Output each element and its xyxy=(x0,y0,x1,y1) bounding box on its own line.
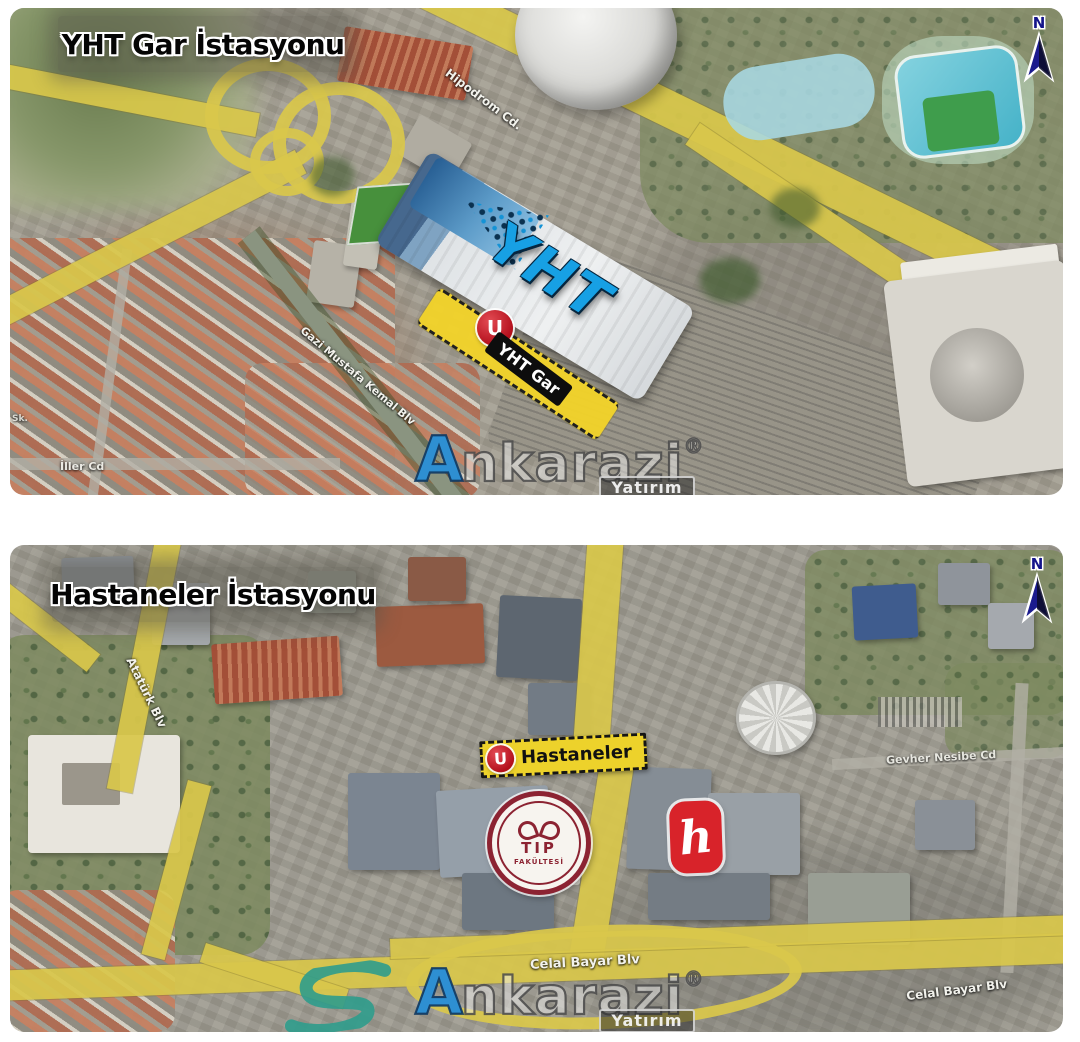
hacettepe-logo: h xyxy=(669,800,723,874)
trees xyxy=(700,258,760,303)
hospital-building xyxy=(648,873,770,920)
north-arrow: N xyxy=(1018,16,1060,83)
two-map-infographic: YHT U YHT Gar Hipodrom Cd. Gazi Mustafa … xyxy=(0,0,1080,1042)
building xyxy=(496,595,582,681)
watermark-logo: Ankarazi® Yatırım xyxy=(415,432,705,495)
building xyxy=(375,603,485,667)
circular-courtyard xyxy=(930,328,1024,422)
map-title: Hastaneler İstasyonu xyxy=(50,578,376,611)
brand-a-icon: A xyxy=(415,956,464,1029)
building xyxy=(211,636,343,705)
brand-a-icon: A xyxy=(415,423,464,495)
north-label: N xyxy=(1031,557,1044,572)
parking-lot xyxy=(878,697,962,727)
map-title: YHT Gar İstasyonu xyxy=(62,28,345,61)
metro-station-icon: U xyxy=(486,745,514,773)
logo-inner-ring xyxy=(497,801,581,885)
residential-area xyxy=(10,890,175,1032)
watermark-logo: Ankarazi® Yatırım xyxy=(415,965,705,1032)
registered-mark: ® xyxy=(684,967,705,991)
watermark-subtitle: Yatırım xyxy=(599,1009,694,1032)
trees xyxy=(310,156,355,196)
registered-mark: ® xyxy=(684,434,705,458)
metro-u-symbol: U xyxy=(494,749,508,769)
building xyxy=(852,583,919,640)
building xyxy=(938,563,990,605)
tip-fakultesi-logo: TIP FAKÜLTESİ xyxy=(487,791,591,895)
north-arrow: N xyxy=(1016,557,1058,624)
map-title-banner: Hastaneler İstasyonu xyxy=(52,567,374,622)
trees xyxy=(770,188,820,228)
park-area xyxy=(945,663,1063,758)
map-yht-gar: YHT U YHT Gar Hipodrom Cd. Gazi Mustafa … xyxy=(10,8,1063,495)
hacettepe-deer-glyph: h xyxy=(677,812,715,861)
building xyxy=(408,557,466,601)
map-title-banner: YHT Gar İstasyonu xyxy=(58,16,348,72)
map-hastaneler: U Hastaneler TIP FAKÜLTESİ h Atatürk Blv… xyxy=(10,545,1063,1032)
building xyxy=(915,800,975,850)
north-arrow-icon xyxy=(1018,572,1056,624)
street-label: İller Cd xyxy=(60,460,104,473)
north-arrow-icon xyxy=(1020,31,1058,83)
north-label: N xyxy=(1033,16,1046,31)
green-pool xyxy=(922,90,1000,152)
station-marker-label: Hastaneler xyxy=(521,741,633,768)
street-label: Sk. xyxy=(12,414,28,424)
circular-building xyxy=(736,681,816,755)
watermark-subtitle: Yatırım xyxy=(599,476,694,495)
hospital-building xyxy=(348,773,440,870)
